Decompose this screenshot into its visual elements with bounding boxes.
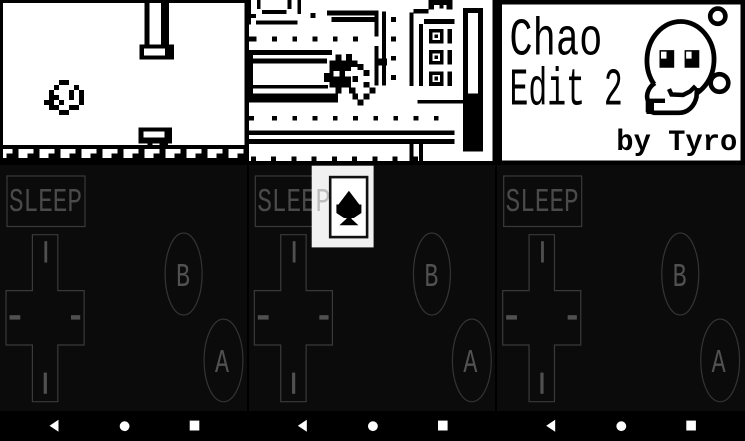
svg-text:A: A — [712, 345, 726, 382]
svg-text:by Tyro: by Tyro — [616, 126, 737, 160]
svg-text:P: P — [316, 184, 331, 221]
svg-text:A: A — [463, 345, 477, 382]
svg-text:A: A — [215, 345, 229, 382]
svg-text:Edit 2: Edit 2 — [510, 60, 623, 120]
svg-text:SLEEP: SLEEP — [506, 184, 579, 221]
svg-text:SLEEP: SLEEP — [9, 184, 82, 221]
svg-text:B: B — [424, 259, 438, 296]
svg-text:B: B — [673, 259, 687, 296]
svg-text:B: B — [176, 259, 190, 296]
